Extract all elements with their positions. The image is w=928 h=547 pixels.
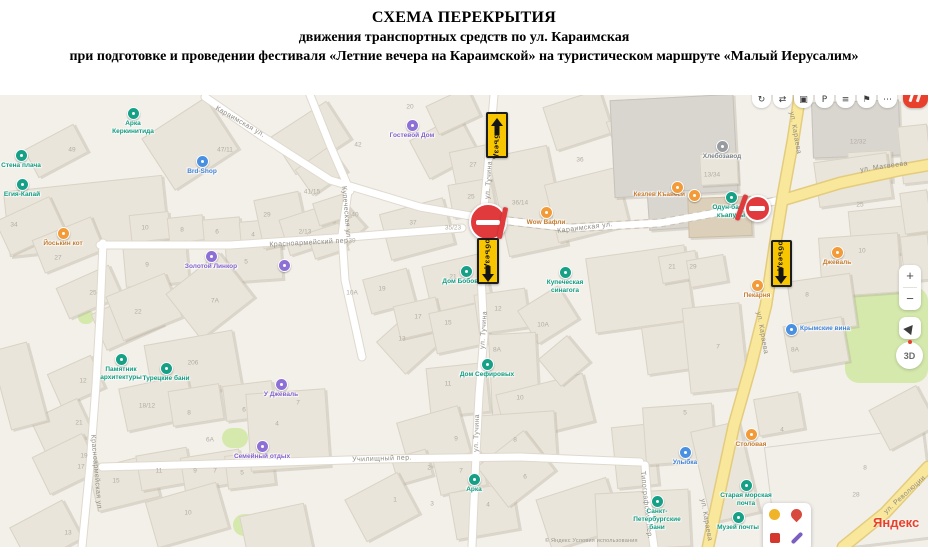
poi-icon xyxy=(127,107,140,120)
building-number: 7 xyxy=(716,344,720,351)
building-number: 8А xyxy=(493,347,501,354)
marker-red-pin-icon[interactable] xyxy=(786,504,807,525)
title-line2: движения транспортных средств по ул. Кар… xyxy=(0,30,928,46)
detour-label: объезд xyxy=(484,239,493,269)
building-number: 27 xyxy=(54,255,61,262)
building-number: 7 xyxy=(459,468,463,475)
building-number: 6А xyxy=(206,437,214,444)
more-icon[interactable]: ⋯ xyxy=(878,95,897,108)
building-number: 19 xyxy=(80,453,87,460)
building-number: 10 xyxy=(516,395,523,402)
transport-icon[interactable]: ▣ xyxy=(794,95,813,108)
building-number: 22 xyxy=(134,309,141,316)
poi-label: Йоськин кот xyxy=(43,240,82,248)
building-number: 15 xyxy=(112,478,119,485)
building-number: 2/13 xyxy=(299,229,312,236)
poi-label: Джеваль xyxy=(823,259,851,267)
poi-label: Wow Вафли xyxy=(527,219,566,227)
building-number: 37 xyxy=(409,220,416,227)
building-number: 21 xyxy=(75,420,82,427)
building-number: 11 xyxy=(156,468,163,475)
marker-red-square-icon xyxy=(770,533,780,543)
locate-button[interactable] xyxy=(899,317,921,339)
building-number: 12 xyxy=(79,378,86,385)
street-label: ул. Тучина xyxy=(473,414,481,452)
map-toolbar: ↻⇄▣P≡⚑⋯ xyxy=(752,95,897,108)
poi-icon xyxy=(468,473,481,486)
poi-icon xyxy=(725,191,738,204)
building-number: 17 xyxy=(414,314,421,321)
poi-icon xyxy=(15,149,28,162)
building-number: 11 xyxy=(445,381,452,388)
detour-sign: объезд xyxy=(486,112,508,158)
poi-label: Стена плача xyxy=(1,162,41,170)
marker-yellow-circle-icon[interactable] xyxy=(764,504,785,525)
poi-label: Пекарня xyxy=(744,292,771,300)
poi-icon xyxy=(196,155,209,168)
poi-icon xyxy=(732,511,745,524)
building-number: 18/12 xyxy=(139,403,155,410)
building-number: 5 xyxy=(244,259,248,266)
poi-label: Егия-Капай xyxy=(4,191,40,199)
building-number: 8 xyxy=(187,410,191,417)
poi-icon xyxy=(115,353,128,366)
arrow-up-icon xyxy=(491,118,503,126)
building-number: 40 xyxy=(351,212,358,219)
building-number: 8 xyxy=(863,465,867,472)
building-number: 19 xyxy=(378,286,385,293)
building-number: 8А xyxy=(791,347,799,354)
zoom-out-button[interactable]: − xyxy=(899,288,921,310)
poi-label: Арка Керкинитида xyxy=(112,120,154,136)
building-number: 29 xyxy=(263,212,270,219)
poi-label: Крымские вина xyxy=(800,325,850,333)
building-number: 25 xyxy=(467,194,474,201)
map-attribution[interactable]: © Яндекс Условия использования xyxy=(545,538,638,544)
detour-sign: объезд xyxy=(771,240,792,287)
ul-matveeva xyxy=(783,165,928,200)
view-3d-button[interactable]: 3D xyxy=(896,342,923,369)
detour-sign: объезд xyxy=(477,238,499,284)
building-number: 10 xyxy=(184,510,191,517)
ul-karaeva xyxy=(708,95,800,547)
poi-icon xyxy=(160,362,173,375)
building-number: 4 xyxy=(251,232,255,239)
building-number: 6 xyxy=(215,229,219,236)
building-number: 4 xyxy=(780,427,784,434)
no-entry-sign xyxy=(744,195,771,222)
building-number: 28 xyxy=(852,492,859,499)
poi-label: Турецкие бани xyxy=(142,375,189,383)
layers-icon[interactable]: ≡ xyxy=(836,95,855,108)
poi-label: Гостевой Дом xyxy=(390,132,435,140)
building-number: 27 xyxy=(469,162,476,169)
zoom-in-button[interactable]: + xyxy=(899,265,921,287)
poi-icon xyxy=(751,279,764,292)
poi-icon xyxy=(481,358,494,371)
location-arrow-icon xyxy=(903,321,916,334)
title-line1: СХЕМА ПЕРЕКРЫТИЯ xyxy=(0,0,928,27)
building-number: 7А xyxy=(211,298,219,305)
poi-icon xyxy=(785,323,798,336)
building-number: 13/34 xyxy=(704,172,720,179)
map-canvas[interactable]: ↻⇄▣P≡⚑⋯ + − 3D Яндекс © Яндекс Условия и… xyxy=(0,95,928,547)
building-number: 8 xyxy=(513,437,517,444)
poi-icon xyxy=(406,119,419,132)
poi-icon xyxy=(651,495,664,508)
building-number: 29 xyxy=(689,264,696,271)
poi-label: Арка xyxy=(466,486,482,494)
building-number: 25 xyxy=(89,290,96,297)
poi-icon xyxy=(256,440,269,453)
view-3d-label: 3D xyxy=(904,351,916,361)
poi-icon xyxy=(540,206,553,219)
poi-icon xyxy=(278,259,291,272)
yandex-logo[interactable]: Яндекс xyxy=(873,515,919,530)
poi-icon xyxy=(559,266,572,279)
building-number: 5 xyxy=(683,410,687,417)
building-number: 4 xyxy=(275,421,279,428)
poi-icon xyxy=(740,479,753,492)
poi-icon xyxy=(688,189,701,202)
poi-label: Brd-Shop xyxy=(187,168,217,176)
poi-label: Столовая xyxy=(736,441,767,449)
zoom-control: + − xyxy=(899,265,921,310)
poi-label: Дом Сефировых xyxy=(460,371,514,379)
building-number: 1 xyxy=(393,497,397,504)
building-number: 20 xyxy=(406,104,413,111)
building-number: 49 xyxy=(68,147,75,154)
building-number: 42 xyxy=(354,142,361,149)
building-number: 6 xyxy=(242,407,246,414)
pencil-purple-icon[interactable] xyxy=(786,528,807,547)
title-line3: при подготовке и проведении фестиваля «Л… xyxy=(0,49,928,65)
page: СХЕМА ПЕРЕКРЫТИЯ движения транспортных с… xyxy=(0,0,928,547)
marker-red-square-icon[interactable] xyxy=(764,528,785,547)
building-number: 8 xyxy=(805,292,809,299)
marker-yellow-circle-icon xyxy=(769,509,780,520)
building-number: 10А xyxy=(537,322,549,329)
poi-label: У Джеваль xyxy=(264,391,298,399)
building-number: 12/32 xyxy=(850,139,866,146)
building-number: 10 xyxy=(141,225,148,232)
poi-icon xyxy=(460,265,473,278)
building-number: 35/23 xyxy=(445,225,461,232)
road-network xyxy=(0,95,928,547)
building-number: 21 xyxy=(668,264,675,271)
building-number: 9 xyxy=(193,468,197,475)
poi-label: Золотой Линкор xyxy=(185,263,237,271)
building-number: 7 xyxy=(296,400,300,407)
marker-red-pin-icon xyxy=(789,507,805,523)
poi-icon xyxy=(745,428,758,441)
poi-label: Памятник архитектуры xyxy=(100,366,142,382)
building-number: 5 xyxy=(240,470,244,477)
building-number: 13 xyxy=(64,530,71,537)
building-number: 41/15 xyxy=(304,189,320,196)
annotation-palette xyxy=(763,503,811,547)
poi-label: Музей почты xyxy=(717,524,759,532)
building-number: 9 xyxy=(145,262,149,269)
title-block: СХЕМА ПЕРЕКРЫТИЯ движения транспортных с… xyxy=(0,0,928,95)
building-number: 47/11 xyxy=(217,147,233,154)
poi-icon xyxy=(16,178,29,191)
poi-label: Улыбка xyxy=(673,459,697,467)
poi-icon xyxy=(679,446,692,459)
building-number: 15 xyxy=(444,320,451,327)
poi-icon xyxy=(831,246,844,259)
building-number: 206 xyxy=(188,360,199,367)
poi-icon xyxy=(671,181,684,194)
pencil-purple-icon xyxy=(790,532,803,545)
building-number: 36 xyxy=(576,157,583,164)
detour-label: объезд xyxy=(777,240,786,270)
poi-label: Семейный отдых xyxy=(234,453,290,461)
arrow-down-icon xyxy=(775,276,787,284)
building-number: 3 xyxy=(430,501,434,508)
poi-label: Хлебозавод xyxy=(703,153,742,161)
detour-label: объезд xyxy=(493,129,502,159)
building-number: 25 xyxy=(856,202,863,209)
building-number: 4 xyxy=(486,502,490,509)
traffic-button[interactable] xyxy=(903,95,928,108)
poi-icon xyxy=(205,250,218,263)
poi-icon xyxy=(275,378,288,391)
building-number: 7 xyxy=(213,468,217,475)
building-number: 10А xyxy=(346,290,358,297)
building-number: 6 xyxy=(523,474,527,481)
building-number: 12 xyxy=(494,306,501,313)
poi-icon xyxy=(57,227,70,240)
refresh-icon[interactable]: ↻ xyxy=(752,95,771,108)
building-number: 8 xyxy=(180,227,184,234)
building-number: 10 xyxy=(858,248,865,255)
poi-label: Санкт- Петербургские бани xyxy=(633,508,681,531)
building-number: 39 xyxy=(348,238,355,245)
arrow-down-icon xyxy=(482,274,494,282)
building-number: 36/14 xyxy=(512,200,528,207)
poi-label: Купеческая синагога xyxy=(547,279,584,295)
building-number: 2 xyxy=(427,465,431,472)
building-number: 9 xyxy=(454,436,458,443)
building-number: 17 xyxy=(77,464,84,471)
building-number: 34 xyxy=(10,222,17,229)
routes-icon[interactable]: ⇄ xyxy=(773,95,792,108)
building-number: 13 xyxy=(398,336,405,343)
parking-icon[interactable]: P xyxy=(815,95,834,108)
bookmark-icon[interactable]: ⚑ xyxy=(857,95,876,108)
tilt-indicator-icon xyxy=(908,340,912,344)
poi-icon xyxy=(716,140,729,153)
